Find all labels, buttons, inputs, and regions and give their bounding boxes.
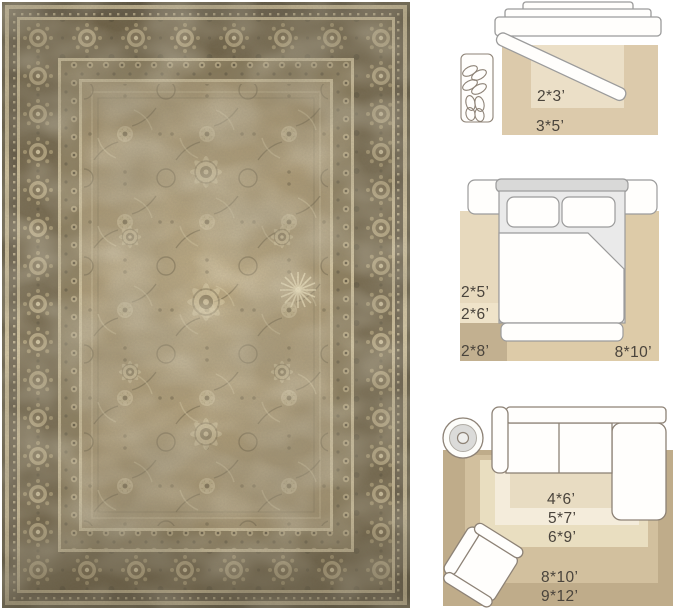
label-2x8: 2*8’ (461, 343, 489, 360)
label-6x9: 6*9’ (548, 529, 576, 546)
label-9x12: 9*12’ (541, 588, 578, 605)
label-3x5: 3*5’ (536, 118, 564, 135)
round-side-table-icon (443, 418, 483, 458)
product-image: 2*3’ 3*5’ 2*5’ 2*6’ 2*8’ 8*10’ (0, 0, 679, 610)
label-2x3: 2*3’ (537, 88, 565, 105)
living-room-diagram: 4*6’ 5*7’ 6*9’ 8*10’ 9*12’ (440, 407, 673, 609)
label-2x6: 2*6’ (461, 306, 489, 323)
shoe-mat-icon (461, 54, 493, 122)
size-guide: 2*3’ 3*5’ 2*5’ 2*6’ 2*8’ 8*10’ (440, 0, 679, 610)
label-8x10-living: 8*10’ (541, 569, 578, 586)
entryway-diagram: 2*3’ 3*5’ (461, 2, 661, 135)
label-5x7: 5*7’ (548, 510, 576, 527)
label-4x6: 4*6’ (547, 491, 575, 508)
bedroom-diagram: 2*5’ 2*6’ 2*8’ 8*10’ (460, 179, 659, 361)
rug-image (2, 2, 410, 608)
label-2x5: 2*5’ (461, 284, 489, 301)
label-8x10-bedroom: 8*10’ (615, 344, 652, 361)
